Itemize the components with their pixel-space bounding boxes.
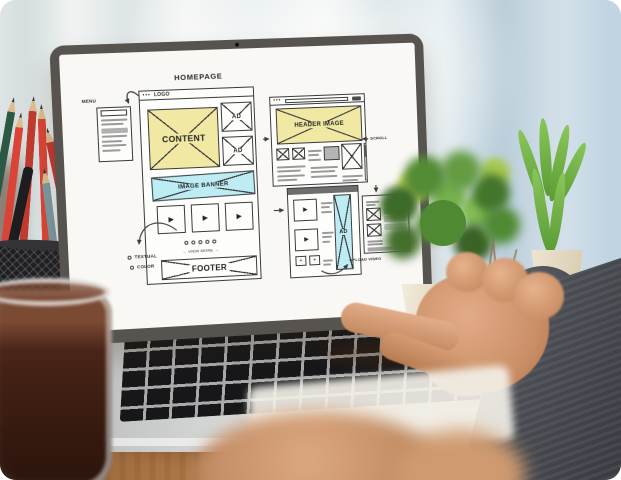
video-thumb: ▶ — [157, 205, 186, 234]
option-color: COLOR — [137, 264, 155, 270]
image-banner-block: IMAGE BANNER — [151, 170, 256, 201]
header-image-block: HEADER IMAGE — [276, 105, 363, 144]
list-item — [384, 207, 407, 214]
list-item — [384, 215, 407, 222]
ad-block: AD — [220, 102, 252, 132]
add-box: + — [295, 256, 306, 266]
ad-block: AD — [222, 136, 254, 166]
scroll-note: SCROLL — [370, 135, 387, 141]
video-thumb: ▶ — [294, 228, 318, 251]
play-icon: ▶ — [304, 237, 309, 243]
play-icon: ▶ — [303, 207, 308, 213]
knuckle — [446, 252, 488, 292]
radio-icon — [127, 256, 131, 260]
detail-frame: ••• HEADER IMAGE — [269, 93, 368, 187]
potted-plant-foliage — [420, 200, 466, 246]
content-block: CONTENT — [147, 107, 220, 170]
scrollbar — [364, 143, 368, 181]
browser-dots-icon: ••• — [273, 98, 281, 103]
play-icon: ▶ — [236, 213, 242, 220]
list-item — [384, 223, 407, 230]
video-frame: ▶ ▶ + + AD — [287, 185, 362, 279]
text-lines — [322, 229, 334, 245]
photo-scene: HOMEPAGE MENU ••• LOGO CONTE — [0, 0, 621, 480]
menu-label: MENU — [82, 98, 97, 104]
plus-icon: + — [313, 258, 316, 263]
video-thumb: ▶ — [191, 203, 220, 232]
mobile-frame: LOGO — [362, 193, 411, 253]
footer-bar — [368, 246, 409, 252]
webcam-icon — [235, 43, 239, 47]
view-more-label: ← VIEW MORE → — [183, 247, 219, 254]
logo-text: LOGO — [392, 198, 404, 204]
footer-block: FOOTER — [161, 255, 258, 280]
pagination-dots — [184, 239, 216, 245]
wireframe-title: HOMEPAGE — [174, 71, 223, 82]
gray-block — [323, 146, 339, 161]
video-thumb: ▶ — [293, 199, 317, 222]
play-icon: ▶ — [168, 216, 174, 223]
logo-text: LOGO — [154, 92, 170, 99]
radio-icon — [130, 266, 134, 270]
plus-icon: + — [299, 258, 302, 263]
laptop-screen: HOMEPAGE MENU ••• LOGO CONTE — [59, 43, 424, 333]
text-lines — [366, 199, 380, 208]
upload-note: UPLOAD VIDEO — [349, 256, 381, 263]
add-box: + — [309, 255, 320, 265]
coffee-glass — [0, 278, 112, 480]
text-lines — [321, 199, 333, 215]
browser-bar: ••• — [270, 94, 364, 106]
text-lines — [323, 256, 333, 268]
text-lines — [308, 147, 322, 164]
menu-panel — [96, 106, 133, 162]
video-thumb: ▶ — [225, 202, 254, 231]
browser-dots-icon: ••• — [142, 93, 151, 98]
text-lines — [310, 163, 340, 180]
text-lines — [277, 162, 307, 184]
browser-bar: ••• LOGO — [139, 87, 253, 100]
knuckle — [514, 272, 564, 320]
play-icon: ▶ — [202, 214, 208, 221]
search-button-box — [352, 96, 361, 100]
text-lines — [342, 172, 363, 184]
